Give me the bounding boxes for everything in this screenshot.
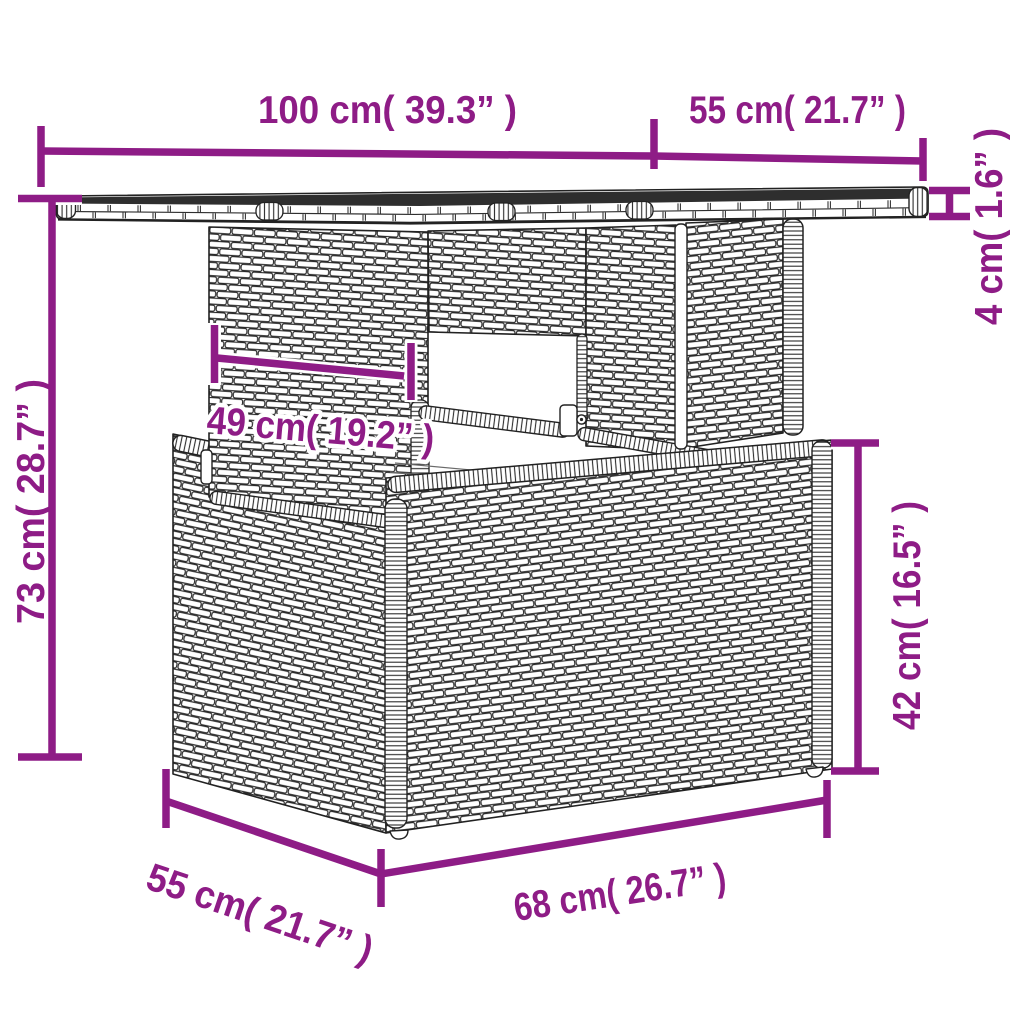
svg-text:42 cm( 16.5” ): 42 cm( 16.5” )	[886, 501, 929, 730]
svg-text:55 cm( 21.7” ): 55 cm( 21.7” )	[689, 89, 906, 132]
svg-text:100 cm( 39.3” ): 100 cm( 39.3” )	[258, 89, 517, 132]
svg-text:4 cm( 1.6” ): 4 cm( 1.6” )	[968, 128, 1011, 325]
svg-text:73 cm( 28.7” ): 73 cm( 28.7” )	[10, 379, 53, 624]
